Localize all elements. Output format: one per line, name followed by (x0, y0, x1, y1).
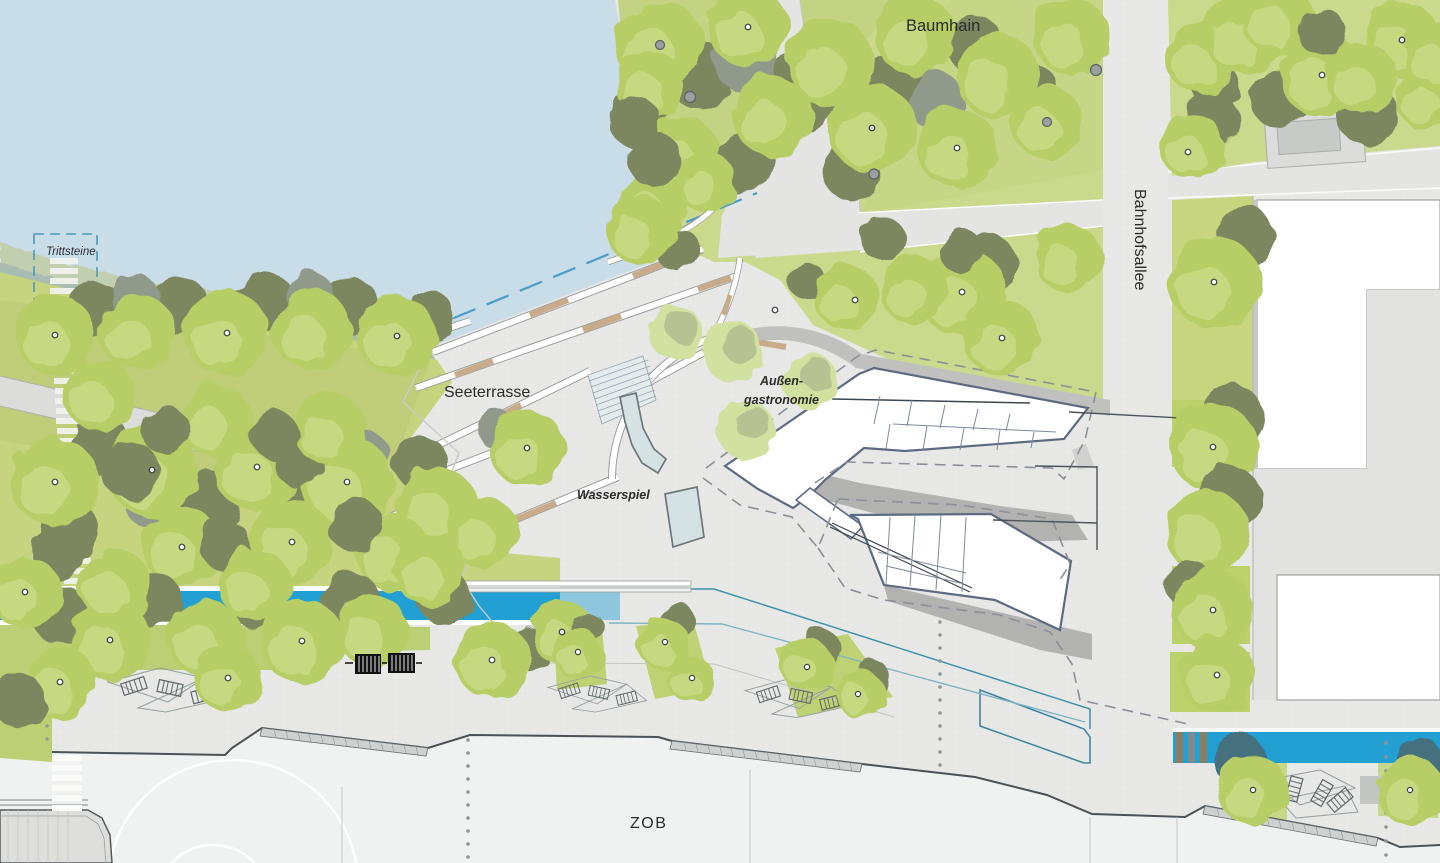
svg-text:Seeterrasse: Seeterrasse (444, 384, 530, 401)
svg-text:Bahnhofsallee: Bahnhofsallee (1131, 189, 1148, 291)
svg-text:gastronomie: gastronomie (743, 393, 819, 407)
svg-text:Außen-: Außen- (759, 374, 803, 388)
svg-text:Baumhain: Baumhain (906, 17, 980, 35)
svg-text:Trittsteine: Trittsteine (46, 246, 96, 258)
svg-text:Wasserspiel: Wasserspiel (577, 488, 650, 502)
svg-text:ZOB: ZOB (630, 815, 667, 832)
